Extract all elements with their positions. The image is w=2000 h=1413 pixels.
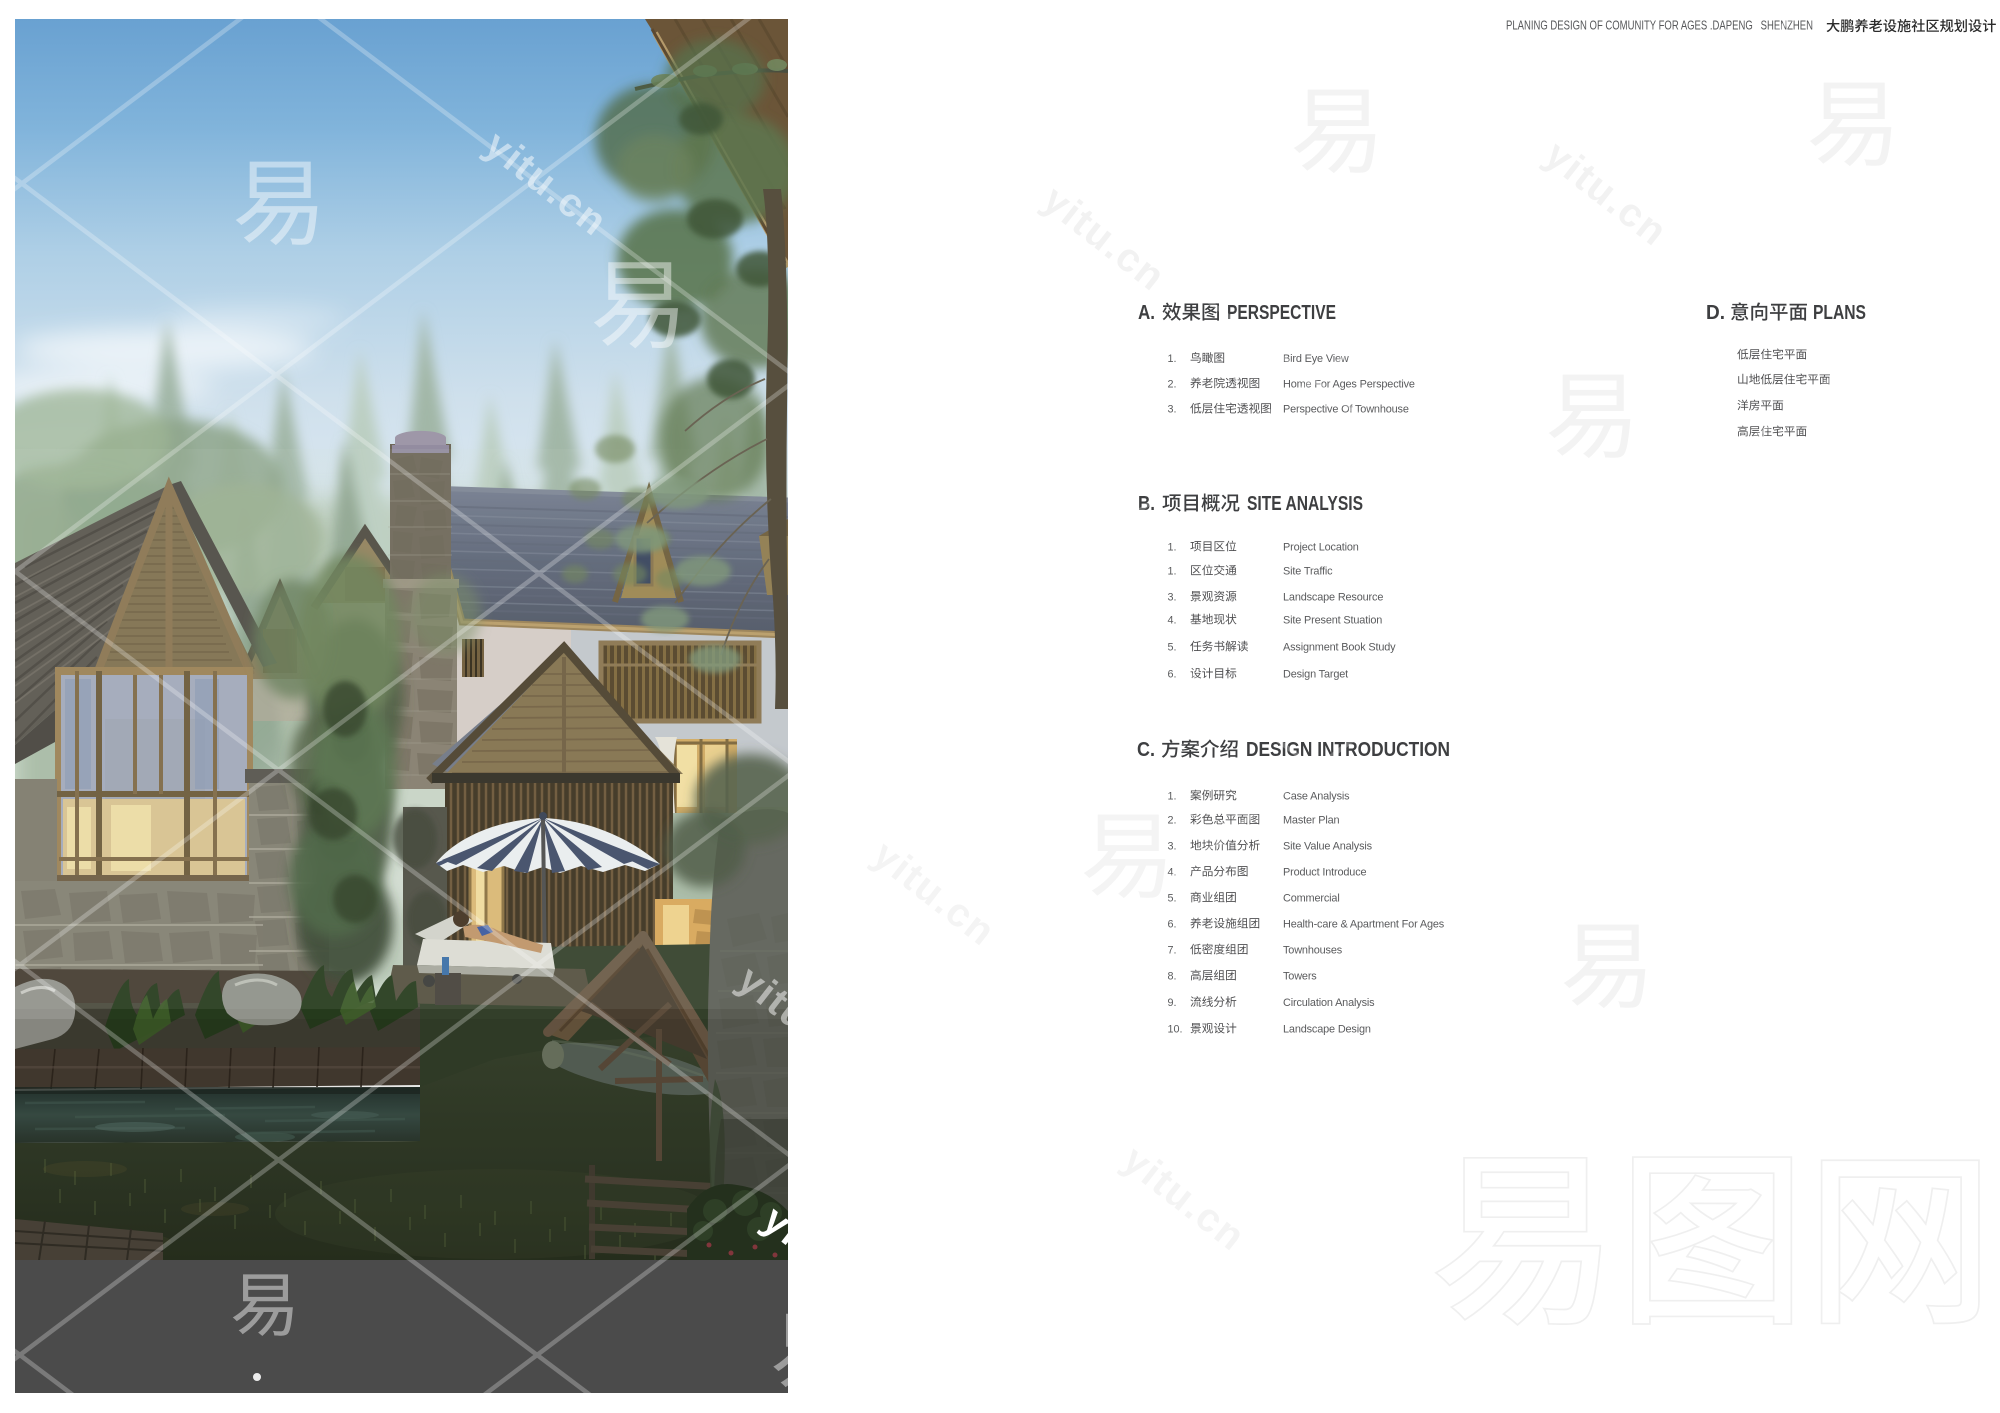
svg-text:1.: 1. — [1168, 566, 1177, 578]
svg-text:4.: 4. — [1168, 615, 1177, 627]
svg-text:3.: 3. — [1168, 841, 1177, 853]
svg-text:Circulation Analysis: Circulation Analysis — [1283, 997, 1375, 1009]
svg-text:Towers: Towers — [1283, 971, 1317, 983]
svg-text:PLANING DESIGN OF COMUNITY FOR: PLANING DESIGN OF COMUNITY FOR AGES .DAP… — [1506, 19, 1813, 33]
svg-text:3.: 3. — [1168, 404, 1177, 416]
svg-text:Commercial: Commercial — [1283, 893, 1340, 905]
svg-text:C.: C. — [1137, 739, 1155, 761]
svg-text:10.: 10. — [1168, 1024, 1183, 1036]
svg-text:Assignment Book Study: Assignment Book Study — [1283, 642, 1396, 654]
svg-text:7.: 7. — [1168, 945, 1177, 957]
svg-text:5.: 5. — [1168, 642, 1177, 654]
svg-text:Landscape Design: Landscape Design — [1283, 1024, 1371, 1036]
svg-text:A.: A. — [1138, 302, 1155, 324]
svg-text:yitu.cn: yitu.cn — [729, 957, 869, 1080]
svg-text:9.: 9. — [1168, 997, 1177, 1009]
svg-text:1.: 1. — [1168, 353, 1177, 365]
svg-text:6.: 6. — [1168, 669, 1177, 681]
svg-text:Master Plan: Master Plan — [1283, 815, 1340, 827]
svg-text:Site Traffic: Site Traffic — [1283, 566, 1333, 578]
svg-text:2.: 2. — [1168, 378, 1177, 390]
svg-text:8.: 8. — [1168, 971, 1177, 983]
svg-text:Townhouses: Townhouses — [1283, 945, 1343, 957]
svg-text:Product Introduce: Product Introduce — [1283, 867, 1367, 879]
svg-text:1.: 1. — [1168, 791, 1177, 803]
svg-text:Site Present Stuation: Site Present Stuation — [1283, 615, 1382, 627]
svg-text:6.: 6. — [1168, 919, 1177, 931]
svg-text:yitu.cn: yitu.cn — [1034, 177, 1174, 300]
svg-text:Health-care & Apartment For Ag: Health-care & Apartment For Ages — [1283, 919, 1445, 931]
svg-text:2.: 2. — [1168, 815, 1177, 827]
svg-text:Case Analysis: Case Analysis — [1283, 791, 1350, 803]
svg-text:yitu.cn: yitu.cn — [864, 832, 1004, 955]
svg-text:PERSPECTIVE: PERSPECTIVE — [1227, 302, 1336, 324]
svg-text:1.: 1. — [1168, 542, 1177, 554]
svg-text:Site Value Analysis: Site Value Analysis — [1283, 841, 1373, 853]
svg-text:PLANS: PLANS — [1813, 302, 1866, 324]
svg-text:yitu.cn: yitu.cn — [476, 122, 616, 245]
svg-text:D.: D. — [1706, 302, 1725, 324]
svg-text:SITE ANALYSIS: SITE ANALYSIS — [1247, 493, 1363, 515]
svg-text:3.: 3. — [1168, 592, 1177, 604]
svg-text:Landscape Resource: Landscape Resource — [1283, 592, 1383, 604]
svg-text:Project Location: Project Location — [1283, 542, 1359, 554]
svg-text:5.: 5. — [1168, 893, 1177, 905]
svg-text:yitu.cn: yitu.cn — [1114, 1137, 1254, 1260]
svg-text:Design Target: Design Target — [1283, 669, 1348, 681]
